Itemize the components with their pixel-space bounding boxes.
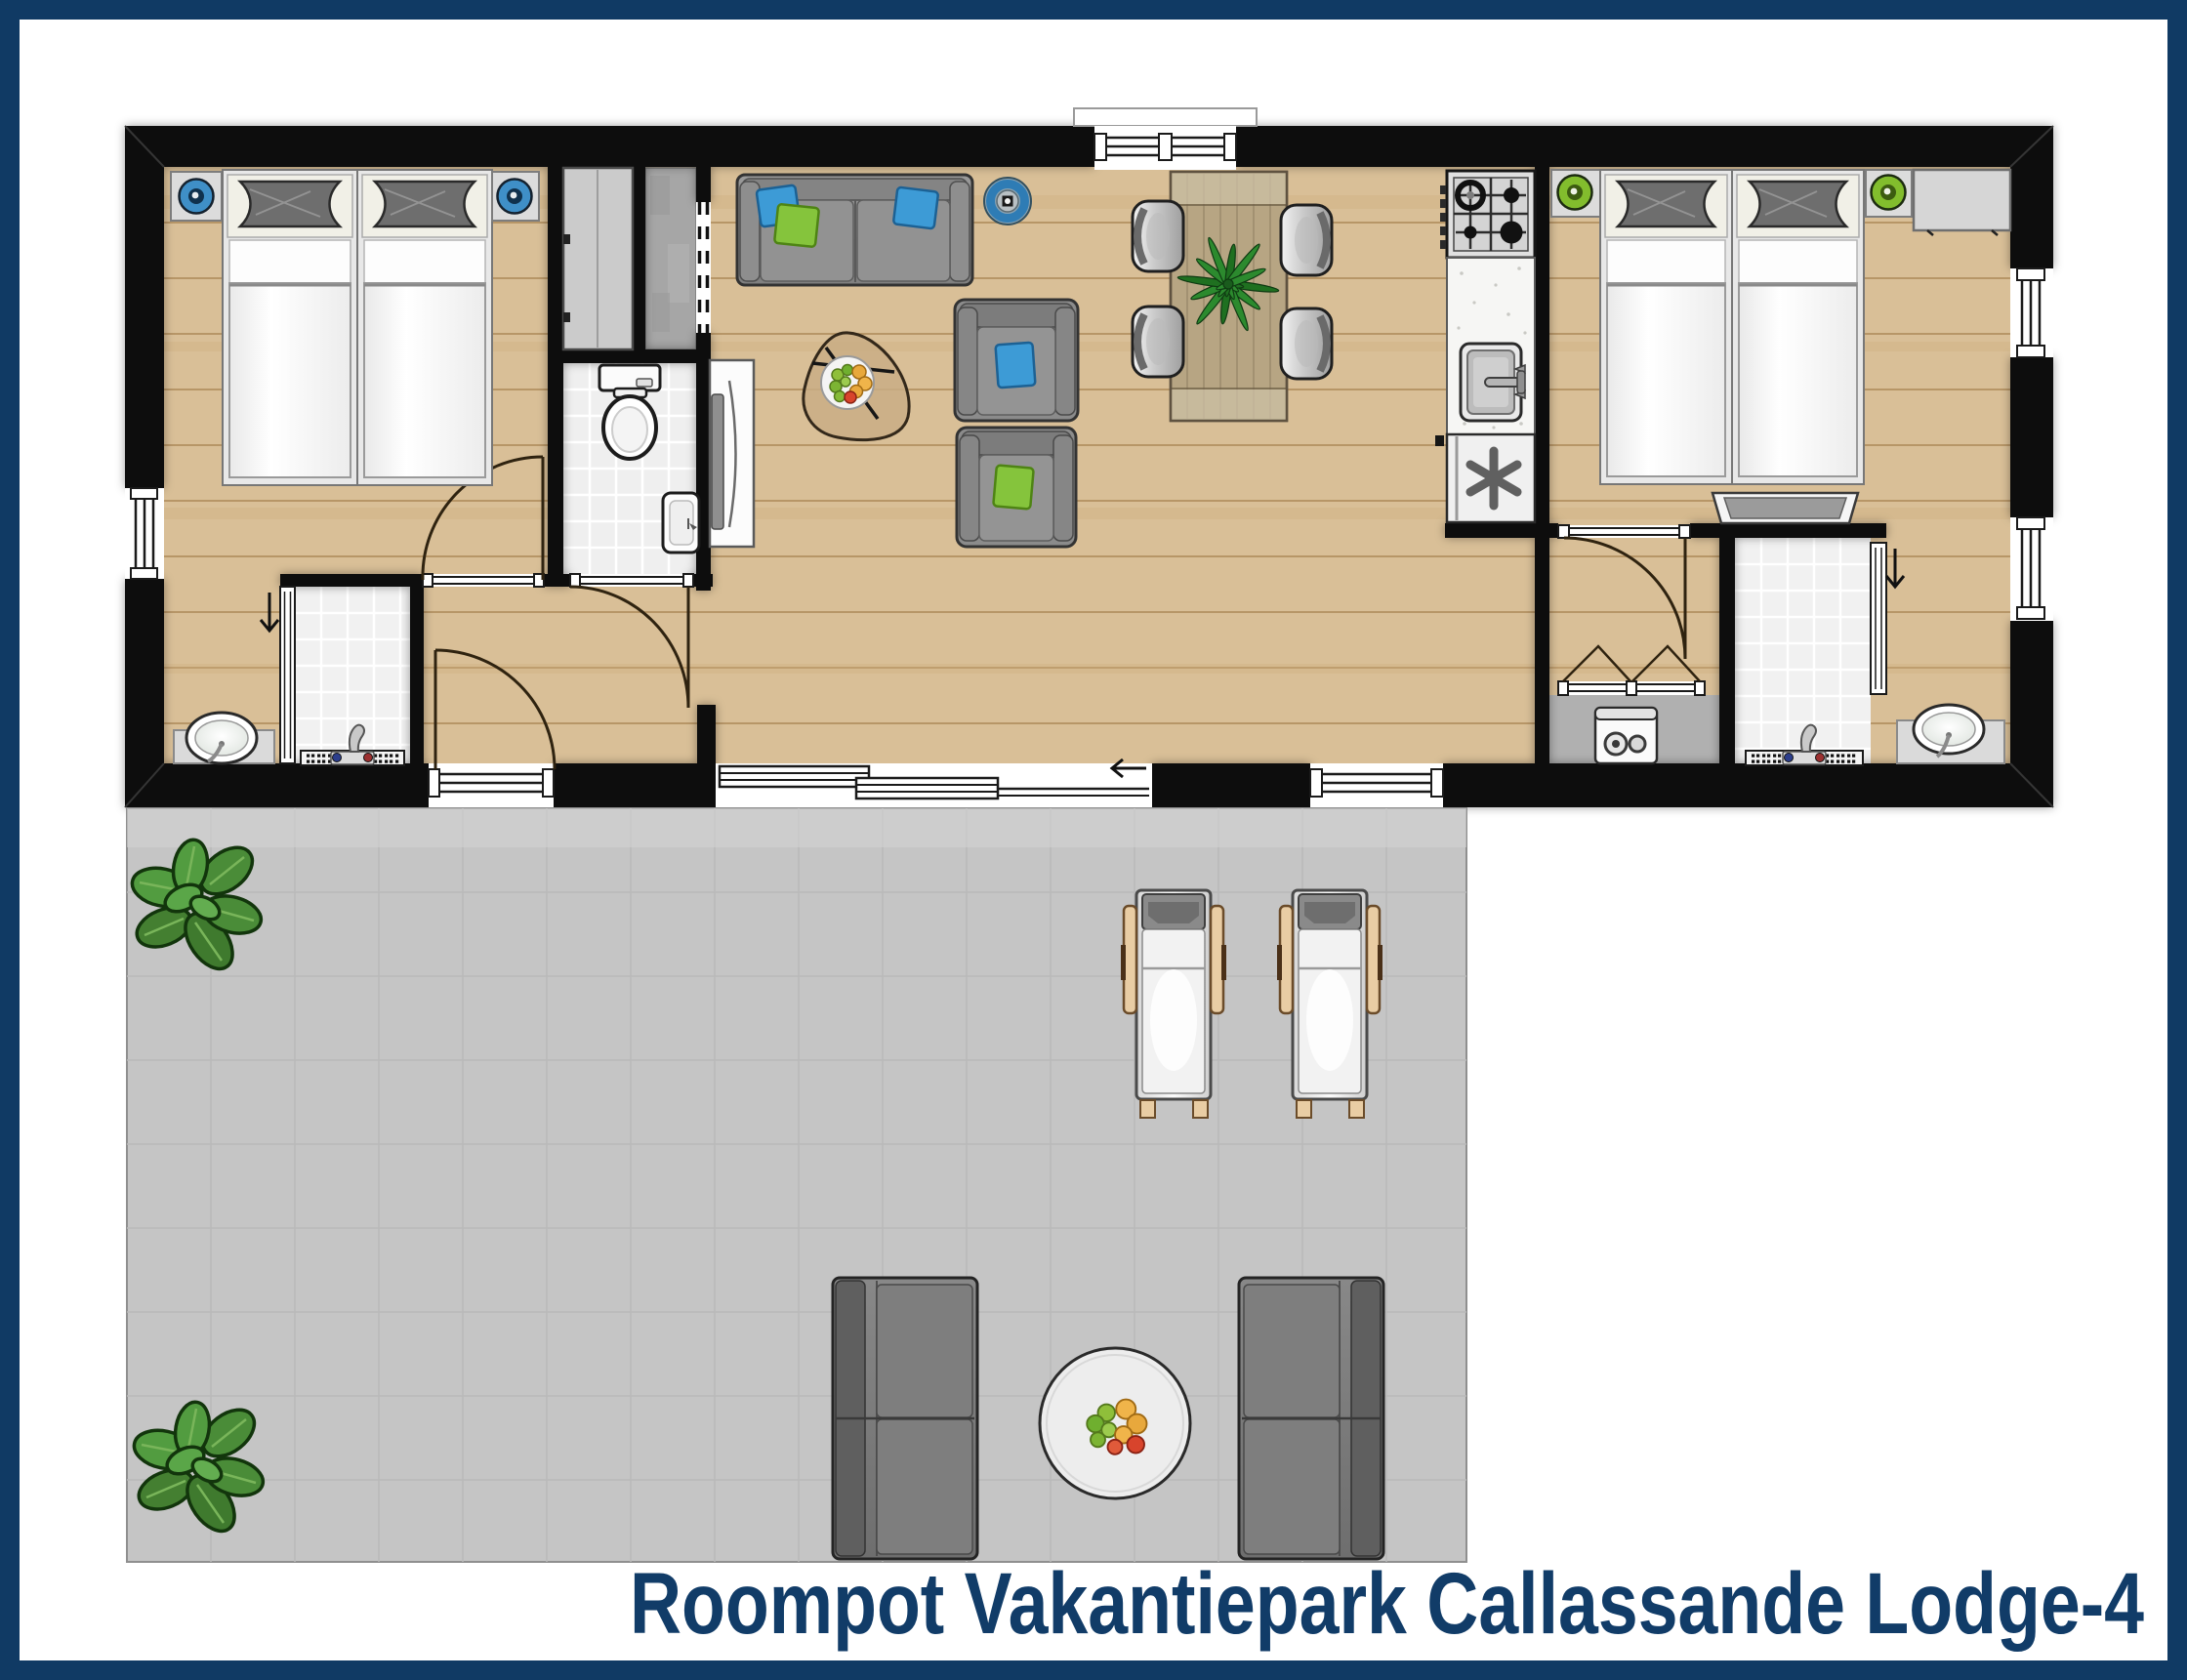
svg-text:Roompot Vakantiepark Callassan: Roompot Vakantiepark Callassande Lodge-4: [630, 1554, 2144, 1652]
